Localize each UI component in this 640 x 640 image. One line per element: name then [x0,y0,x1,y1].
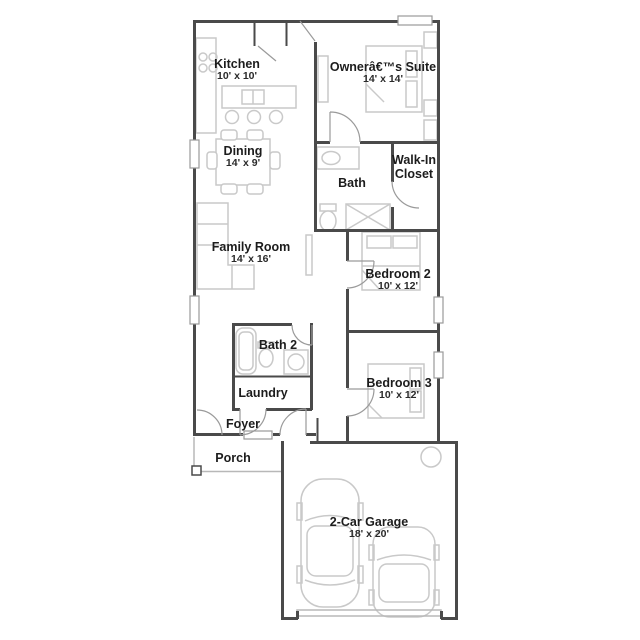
room-label-bedroom3: Bedroom 3 10' x 12' [366,376,431,402]
porch-post [192,466,201,475]
room-label-owners-suite: Ownerâ€™s Suite 14' x 14' [330,60,436,86]
front-door-threshold [244,431,272,439]
family-room-window [190,296,199,324]
room-dims: 14' x 14' [330,74,436,86]
pillow [393,236,417,248]
room-label-walk-in-closet: Walk-In Closet [383,153,445,181]
owners-suite-window [398,16,432,25]
room-name: Foyer [226,417,260,431]
floor-plan: Kitchen 10' x 10' Ownerâ€™s Suite 14' x … [0,0,640,640]
pillow [367,236,391,248]
car-1 [297,479,363,607]
toilet-tank [320,204,336,211]
dresser [318,56,328,102]
tv-console [306,235,312,275]
room-name: Laundry [238,386,287,400]
nightstand [424,100,437,116]
dining-window [190,140,199,168]
room-dims: 10' x 12' [365,281,430,293]
room-label-bedroom2: Bedroom 2 10' x 12' [365,267,430,293]
owners-suite-furniture [318,32,437,140]
garage-entry-door [280,409,306,435]
room-name: Dining [224,144,263,158]
kitchen-furniture [196,38,296,133]
bath-vanity [317,147,359,169]
room-name: Kitchen [214,57,260,71]
water-heater [421,447,441,467]
room-dims: 10' x 10' [214,71,260,83]
room-dims: 14' x 16' [212,254,291,266]
garage-door-jambs [281,611,458,619]
room-label-porch: Porch [215,451,250,465]
dresser [424,120,437,140]
room-label-family-room: Family Room 14' x 16' [212,240,291,266]
room-dims: 18' x 20' [330,529,409,541]
bedroom2-window [434,297,443,323]
room-dims: 14' x 9' [224,158,263,170]
room-label-bath2: Bath 2 [259,338,297,352]
walk-in-closet-door [392,181,419,208]
room-label-garage: 2-Car Garage 18' x 20' [330,515,409,541]
room-dims: 10' x 12' [366,390,431,402]
foyer-closet-door [197,410,222,435]
room-name: Bedroom 3 [366,376,431,390]
nightstand [424,32,437,48]
room-label-kitchen: Kitchen 10' x 10' [214,57,260,83]
toilet [320,211,336,231]
room-name: 2-Car Garage [330,515,409,529]
room-name: Bath 2 [259,338,297,352]
room-name: Ownerâ€™s Suite [330,60,436,74]
room-label-foyer: Foyer [226,417,260,431]
room-name: Walk-In Closet [392,153,436,181]
bedroom3-window [434,352,443,378]
room-label-bath: Bath [338,176,366,190]
floor-plan-drawing [0,0,640,640]
room-label-dining: Dining 14' x 9' [224,144,263,170]
suite-bath-door [330,112,360,142]
pantry-walls [255,21,287,46]
room-name: Bedroom 2 [365,267,430,281]
suite-entry-door [300,21,315,41]
room-name: Porch [215,451,250,465]
room-name: Family Room [212,240,291,254]
room-name: Bath [338,176,366,190]
pantry-door [258,46,276,61]
room-label-laundry: Laundry [238,386,287,400]
bar-stools [226,111,283,124]
garage-door [297,610,441,616]
